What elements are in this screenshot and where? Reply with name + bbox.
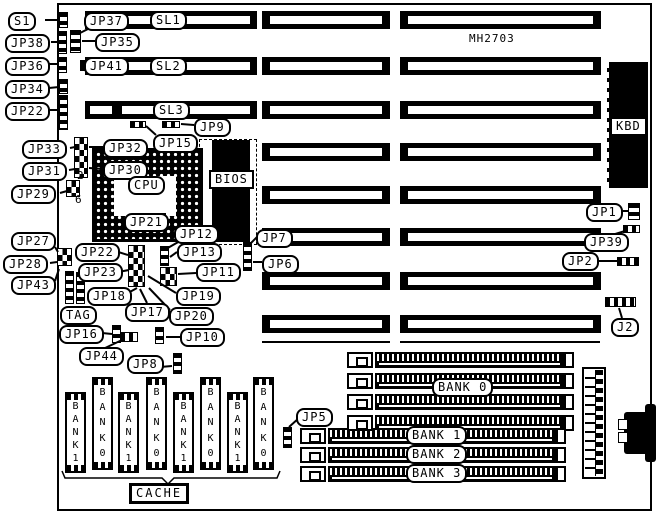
simm-socket-endcap bbox=[556, 466, 566, 482]
callout-jp20: JP20 bbox=[169, 307, 214, 326]
callout-jp6: JP6 bbox=[262, 255, 299, 274]
slot-stripe bbox=[408, 191, 593, 199]
callout-jp23: JP23 bbox=[78, 263, 123, 282]
chip-pins-bottom bbox=[67, 465, 84, 471]
jumper-block bbox=[70, 30, 81, 53]
callout-jp43: JP43 bbox=[11, 276, 56, 295]
simm-socket-clip bbox=[300, 447, 326, 463]
isa-slot-segment bbox=[400, 186, 601, 204]
callout-jp44: JP44 bbox=[79, 347, 124, 366]
callout-jp33: JP33 bbox=[22, 140, 67, 159]
pin-number-digit: 2 bbox=[77, 169, 85, 182]
chip-letter: N bbox=[125, 428, 131, 438]
callout-jp17: JP17 bbox=[125, 303, 170, 322]
chip-letter: K bbox=[234, 441, 240, 451]
jumper-block bbox=[162, 121, 180, 128]
slot-underline bbox=[400, 341, 600, 343]
board-model-label: MH2703 bbox=[469, 32, 515, 45]
chip-letter: A bbox=[72, 415, 78, 425]
bios-label: BIOS bbox=[209, 170, 254, 189]
jumper-block bbox=[130, 121, 146, 128]
cache-chip-label: BANK1 bbox=[120, 400, 137, 465]
jumper-block bbox=[628, 203, 640, 220]
callout-jp29: JP29 bbox=[11, 185, 56, 204]
cache-chip: BANK0 bbox=[146, 377, 167, 470]
cache-chip-label: BANK0 bbox=[255, 385, 272, 462]
simm-socket-clip bbox=[300, 428, 326, 444]
callout-jp9: JP9 bbox=[194, 118, 231, 137]
cache-chip: BANK0 bbox=[200, 377, 221, 470]
clip-mark bbox=[309, 452, 321, 462]
chip-letter: N bbox=[72, 428, 78, 438]
simm-socket-clip bbox=[347, 352, 373, 368]
chip-letter: K bbox=[260, 434, 266, 444]
slot-stripe bbox=[270, 277, 382, 285]
jumper-block bbox=[605, 297, 636, 307]
slot-stripe bbox=[408, 62, 593, 70]
cache-chip-label: BANK1 bbox=[175, 400, 192, 465]
chip-letter: K bbox=[180, 441, 186, 451]
jumper-block bbox=[243, 242, 252, 271]
jumper-block bbox=[65, 271, 74, 304]
clip-mark bbox=[309, 471, 321, 481]
isa-slot-segment bbox=[262, 143, 390, 161]
isa-slot-segment bbox=[262, 11, 390, 29]
chip-pins-bottom bbox=[255, 462, 272, 468]
callout-jp37: JP37 bbox=[84, 12, 129, 31]
isa-slot-segment bbox=[262, 101, 390, 119]
slot-stripe bbox=[408, 233, 593, 241]
isa-slot-segment bbox=[262, 57, 390, 75]
chip-letter: B bbox=[99, 388, 105, 398]
jumper-block bbox=[59, 95, 68, 130]
kbd-label: KBD bbox=[611, 118, 646, 135]
callout-jp34: JP34 bbox=[5, 80, 50, 99]
callout-bank2: BANK 2 bbox=[406, 445, 467, 464]
jumper-block bbox=[59, 79, 68, 94]
chip-letter: 1 bbox=[72, 454, 78, 464]
motherboard-diagram: MH2703 BIOSKBDBANK1BANK0BANK1BANK0BANK1B… bbox=[0, 0, 657, 520]
chip-letter: K bbox=[72, 441, 78, 451]
cache-chip-label: BANK0 bbox=[94, 385, 111, 462]
chip-letter: N bbox=[234, 428, 240, 438]
simm-socket-endcap bbox=[556, 447, 566, 463]
chip-letter: A bbox=[153, 403, 159, 413]
callout-jp35: JP35 bbox=[95, 33, 140, 52]
simm-ticks bbox=[377, 417, 562, 424]
cache-chip: BANK1 bbox=[173, 392, 194, 473]
simm-socket-clip bbox=[347, 394, 373, 410]
callout-jp2: JP2 bbox=[562, 252, 599, 271]
chip-letter: N bbox=[180, 428, 186, 438]
chip-letter: A bbox=[180, 415, 186, 425]
clip-mark bbox=[356, 357, 368, 367]
chip-letter: A bbox=[234, 415, 240, 425]
chip-letter: K bbox=[125, 441, 131, 451]
chip-letter: B bbox=[260, 388, 266, 398]
callout-bank0: BANK 0 bbox=[432, 378, 493, 397]
cache-chip-label: BANK0 bbox=[202, 385, 219, 462]
simm-socket-endcap bbox=[564, 394, 574, 410]
chip-letter: B bbox=[72, 402, 78, 412]
callout-jp15: JP15 bbox=[153, 134, 198, 153]
cache-chip-label: BANK1 bbox=[67, 400, 84, 465]
clip-mark bbox=[356, 378, 368, 388]
cache-chip-label: BANK1 bbox=[229, 400, 246, 465]
cache-chip: BANK0 bbox=[92, 377, 113, 470]
callout-jp7: JP7 bbox=[256, 229, 293, 248]
slot-stripe bbox=[408, 320, 593, 328]
slot-stripe bbox=[408, 277, 593, 285]
callout-jp38: JP38 bbox=[5, 34, 50, 53]
chip-letter: 0 bbox=[260, 449, 266, 459]
simm-ticks bbox=[377, 354, 562, 361]
chip-letter: K bbox=[153, 434, 159, 444]
isa-slot-segment bbox=[400, 143, 601, 161]
chip-letter: N bbox=[153, 418, 159, 428]
simm-socket-endcap bbox=[556, 428, 566, 444]
jumper-block bbox=[160, 267, 177, 286]
chip-letter: 1 bbox=[125, 454, 131, 464]
callout-jp22: JP22 bbox=[5, 102, 50, 121]
slot-underline bbox=[262, 341, 390, 343]
simm-socket-endcap bbox=[564, 352, 574, 368]
simm-socket bbox=[375, 352, 564, 368]
callout-bank1: BANK 1 bbox=[406, 426, 467, 445]
jumper-block bbox=[58, 31, 67, 54]
isa-slot-segment bbox=[262, 186, 390, 204]
callout-jp28: JP28 bbox=[3, 255, 48, 274]
chip-pins-bottom bbox=[175, 465, 192, 471]
callout-jp22: JP22 bbox=[75, 243, 120, 262]
din-notch bbox=[618, 419, 628, 430]
din-notch bbox=[618, 432, 628, 443]
isa-slot-segment bbox=[262, 315, 390, 333]
jumper-block bbox=[173, 353, 182, 374]
chip-letter: B bbox=[153, 388, 159, 398]
callout-jp5: JP5 bbox=[296, 408, 333, 427]
cache-label: CACHE bbox=[129, 483, 189, 504]
chip-pins-bottom bbox=[120, 465, 137, 471]
clip-mark bbox=[356, 420, 368, 430]
callout-jp8: JP8 bbox=[127, 355, 164, 374]
slot-stripe bbox=[270, 320, 382, 328]
chip-letter: A bbox=[260, 403, 266, 413]
chip-letter: N bbox=[207, 418, 213, 428]
keyboard-din-connector bbox=[645, 404, 656, 462]
callout-jp41: JP41 bbox=[84, 57, 129, 76]
callout-jp32: JP32 bbox=[103, 139, 148, 158]
simm-socket-clip bbox=[347, 415, 373, 431]
chip-pins-bottom bbox=[148, 462, 165, 468]
simm-socket-clip bbox=[300, 466, 326, 482]
slot-stripe bbox=[270, 62, 382, 70]
callout-jp11: JP11 bbox=[196, 263, 241, 282]
cache-chip: BANK1 bbox=[227, 392, 248, 473]
clip-mark bbox=[309, 433, 321, 443]
power-connector bbox=[582, 367, 606, 479]
cache-chip: BANK0 bbox=[253, 377, 274, 470]
slot-stripe bbox=[270, 191, 382, 199]
callout-jp21: JP21 bbox=[124, 213, 169, 232]
chip-letter: A bbox=[99, 403, 105, 413]
jumper-block bbox=[58, 57, 67, 73]
callout-j2: J2 bbox=[611, 318, 639, 337]
isa-slot-segment bbox=[400, 315, 601, 333]
callout-jp39: JP39 bbox=[584, 233, 629, 252]
chip-letter: B bbox=[180, 402, 186, 412]
slot-stripe bbox=[270, 16, 382, 24]
callout-sl3: SL3 bbox=[153, 101, 190, 120]
callout-s1: S1 bbox=[8, 12, 36, 31]
callout-tag: TAG bbox=[60, 306, 97, 325]
isa-slot-segment bbox=[400, 11, 601, 29]
chip-letter: K bbox=[207, 434, 213, 444]
pin-number-digit: 6 bbox=[75, 193, 83, 206]
callout-sl2: SL2 bbox=[150, 57, 187, 76]
simm-groove bbox=[379, 363, 560, 365]
simm-groove bbox=[379, 405, 560, 407]
callout-jp12: JP12 bbox=[174, 225, 219, 244]
slot-stripe bbox=[270, 106, 382, 114]
chip-letter: B bbox=[207, 388, 213, 398]
callout-bank3: BANK 3 bbox=[406, 464, 467, 483]
clip-mark bbox=[356, 399, 368, 409]
jumper-block bbox=[160, 246, 169, 266]
callout-jp19: JP19 bbox=[176, 287, 221, 306]
isa-slot-segment bbox=[400, 57, 601, 75]
slot-stripe bbox=[270, 148, 382, 156]
chip-letter: 0 bbox=[153, 449, 159, 459]
slot-stripe bbox=[408, 16, 593, 24]
slot-stripe bbox=[408, 106, 593, 114]
chip-letter: K bbox=[99, 434, 105, 444]
cache-chip-label: BANK0 bbox=[148, 385, 165, 462]
chip-letter: A bbox=[125, 415, 131, 425]
chip-letter: B bbox=[125, 402, 131, 412]
cache-chip: BANK1 bbox=[118, 392, 139, 473]
leader-line bbox=[50, 262, 57, 263]
simm-ticks bbox=[377, 396, 562, 403]
power-pin-column bbox=[596, 370, 603, 476]
callout-jp18: JP18 bbox=[87, 287, 132, 306]
isa-slot-segment bbox=[400, 228, 601, 246]
callout-sl1: SL1 bbox=[150, 11, 187, 30]
callout-cpu: CPU bbox=[128, 176, 165, 195]
chip-letter: B bbox=[234, 402, 240, 412]
callout-jp36: JP36 bbox=[5, 57, 50, 76]
jumper-block bbox=[155, 327, 164, 344]
callout-jp1: JP1 bbox=[586, 203, 623, 222]
isa-slot-segment bbox=[400, 101, 601, 119]
callout-jp13: JP13 bbox=[177, 243, 222, 262]
chip-letter: 1 bbox=[180, 454, 186, 464]
callout-jp31: JP31 bbox=[22, 162, 67, 181]
chip-letter: 0 bbox=[99, 449, 105, 459]
chip-pins-bottom bbox=[229, 465, 246, 471]
isa-slot-segment bbox=[400, 272, 601, 290]
jumper-block bbox=[623, 225, 640, 233]
chip-letter: N bbox=[260, 418, 266, 428]
jumper-block bbox=[120, 332, 138, 342]
slot-stripe bbox=[90, 106, 112, 114]
chip-letter: 1 bbox=[234, 454, 240, 464]
simm-socket-endcap bbox=[564, 373, 574, 389]
slot-stripe bbox=[408, 148, 593, 156]
jumper-block bbox=[283, 427, 292, 448]
chip-letter: N bbox=[99, 418, 105, 428]
callout-jp16: JP16 bbox=[59, 325, 104, 344]
simm-socket-clip bbox=[347, 373, 373, 389]
jumper-block bbox=[59, 12, 68, 28]
chip-letter: A bbox=[207, 403, 213, 413]
chip-pins-bottom bbox=[202, 462, 219, 468]
jumper-block bbox=[128, 245, 145, 287]
jumper-block bbox=[57, 248, 72, 266]
callout-jp27: JP27 bbox=[11, 232, 56, 251]
bios-chip bbox=[212, 140, 250, 242]
chip-letter: 0 bbox=[207, 449, 213, 459]
cache-chip: BANK1 bbox=[65, 392, 86, 473]
callout-jp10: JP10 bbox=[180, 328, 225, 347]
isa-slot-segment bbox=[262, 272, 390, 290]
chip-pins-bottom bbox=[94, 462, 111, 468]
jumper-block bbox=[617, 257, 639, 266]
